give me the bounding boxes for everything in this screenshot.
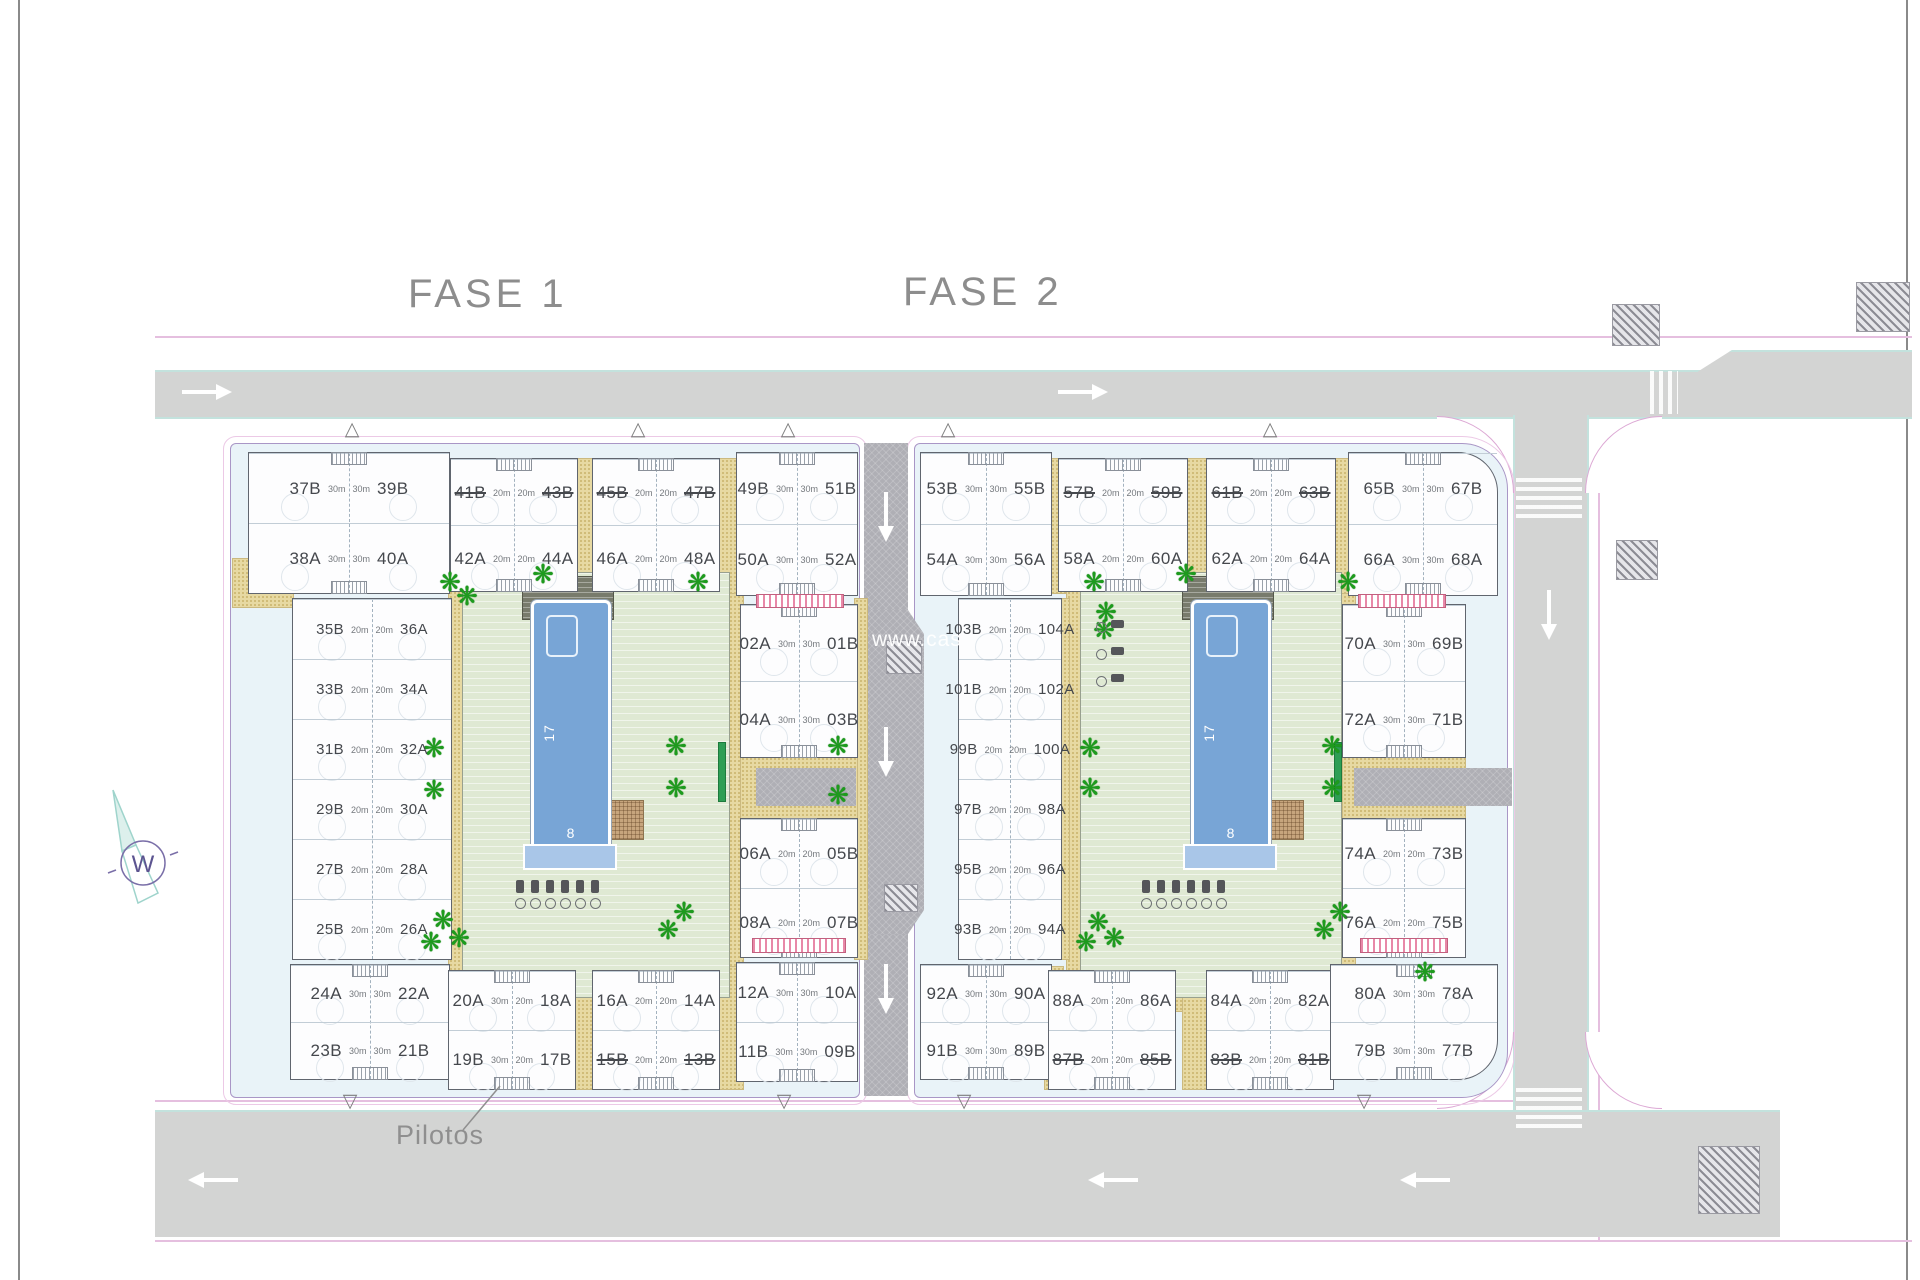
compass: W: [88, 775, 208, 935]
svg-text:W: W: [132, 851, 155, 878]
site-plan: FASE 1 FASE 2 www.cas Pilotos W 17817837…: [0, 0, 1920, 1280]
watermark: www.cas: [872, 628, 962, 652]
compass-needle: [113, 790, 136, 851]
pilotos-label: Pilotos: [396, 1120, 484, 1151]
